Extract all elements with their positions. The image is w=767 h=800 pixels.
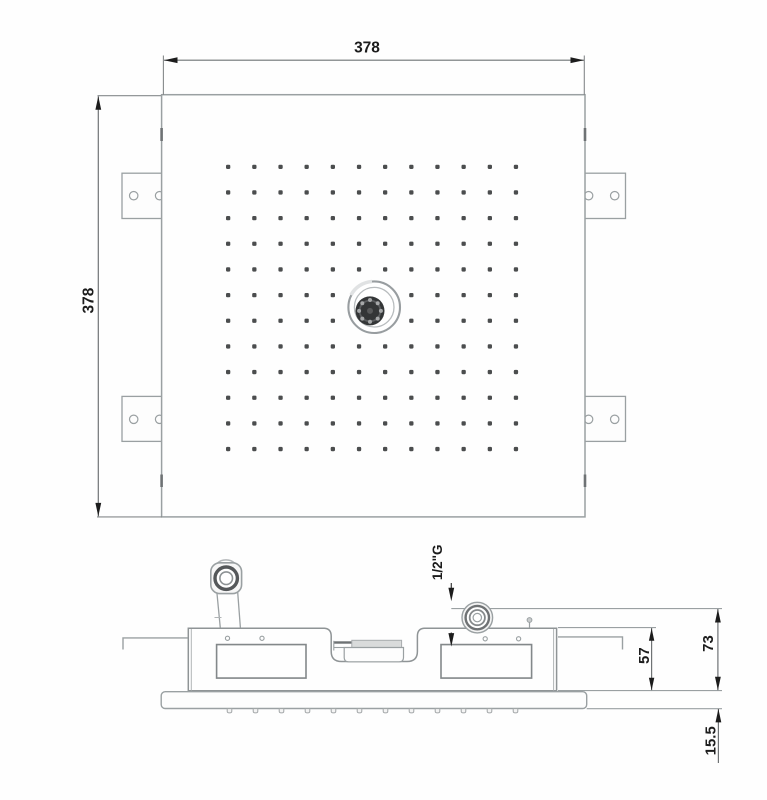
- svg-text:378: 378: [354, 39, 380, 56]
- svg-text:378: 378: [80, 287, 97, 313]
- svg-text:57: 57: [636, 647, 653, 664]
- svg-text:1/2"G: 1/2"G: [430, 544, 445, 580]
- svg-text:15.5: 15.5: [703, 726, 720, 755]
- svg-text:73: 73: [700, 635, 717, 652]
